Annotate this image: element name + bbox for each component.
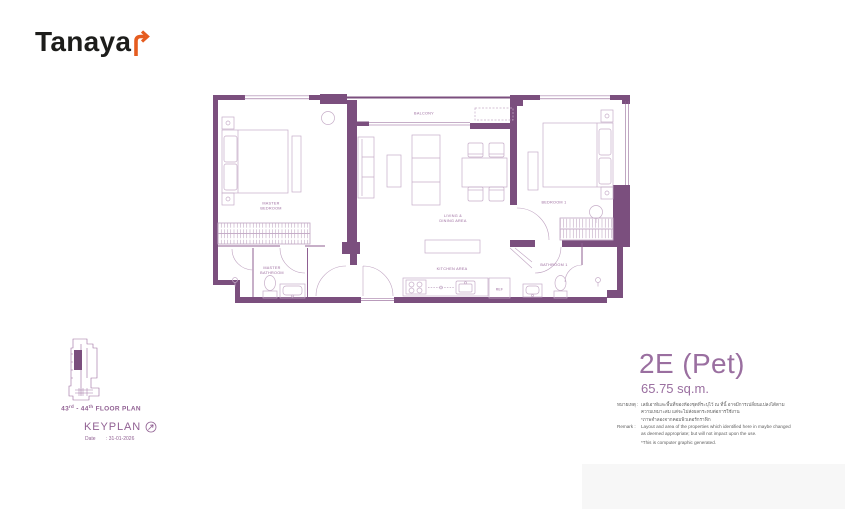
svg-text:BATHROOM: BATHROOM — [260, 271, 284, 275]
label-master-bathroom: MASTER — [263, 266, 280, 270]
label-bedroom1: BEDROOM 1 — [541, 201, 566, 205]
door-swings — [232, 208, 582, 296]
keyplan-graphic — [55, 334, 121, 406]
brand-logo-text: Tanaya — [35, 26, 131, 58]
label-balcony: BALCONY — [414, 112, 434, 116]
label-kitchen: KITCHEN AREA — [437, 267, 468, 271]
partitions — [218, 243, 582, 297]
brand-logo: Tanaya — [35, 26, 150, 58]
disclaimer-thai: หมายเหตุ : เลย์เอาท์และพื้นที่ของห้องชุด… — [617, 401, 794, 423]
bedroom1-wardrobe — [560, 218, 613, 240]
compass-icon — [145, 421, 157, 433]
master-bedroom-bed — [222, 117, 301, 205]
unit-name: 2E (Pet) — [639, 348, 745, 380]
brochure-page: Tanaya — [0, 0, 845, 509]
label-master-bedroom: MASTER — [262, 202, 279, 206]
bedroom1-bed — [528, 110, 613, 199]
brand-arrow-icon — [133, 30, 150, 57]
living-dining-furniture — [358, 135, 507, 253]
label-ref: REF — [496, 288, 504, 292]
room-labels: MASTER BEDROOM BALCONY LIVING & DINING A… — [260, 112, 567, 292]
disclaimer: หมายเหตุ : เลย์เอาท์และพื้นที่ของห้องชุด… — [617, 401, 794, 446]
column-marker — [322, 112, 335, 125]
shaft-brace — [510, 248, 532, 268]
svg-text:BEDROOM: BEDROOM — [260, 207, 281, 211]
kitchen-counter — [403, 278, 510, 298]
gray-corner-panel — [582, 464, 845, 509]
keyplan-unit-highlight — [74, 350, 82, 370]
floor-plan: MASTER BEDROOM BALCONY LIVING & DINING A… — [210, 92, 632, 308]
keyplan-title: KEYPLAN — [84, 421, 157, 433]
bathroom1-fixtures — [523, 276, 601, 299]
svg-text:DINING AREA: DINING AREA — [439, 219, 466, 223]
keyplan-date: Date : 31-01-2026 — [85, 436, 134, 442]
column-marker — [590, 206, 603, 219]
master-wardrobe — [218, 223, 310, 244]
disclaimer-remark: Remark : Layout and area of the properti… — [617, 423, 794, 445]
label-living: LIVING & — [444, 214, 462, 218]
ac-ledge — [475, 108, 513, 120]
unit-area: 65.75 sq.m. — [641, 381, 709, 396]
label-bathroom1: BATHROOM 1 — [540, 263, 567, 267]
master-bathroom-fixtures — [233, 276, 306, 299]
floor-plan-label: 43rd - 44th FLOOR PLAN — [40, 404, 162, 413]
